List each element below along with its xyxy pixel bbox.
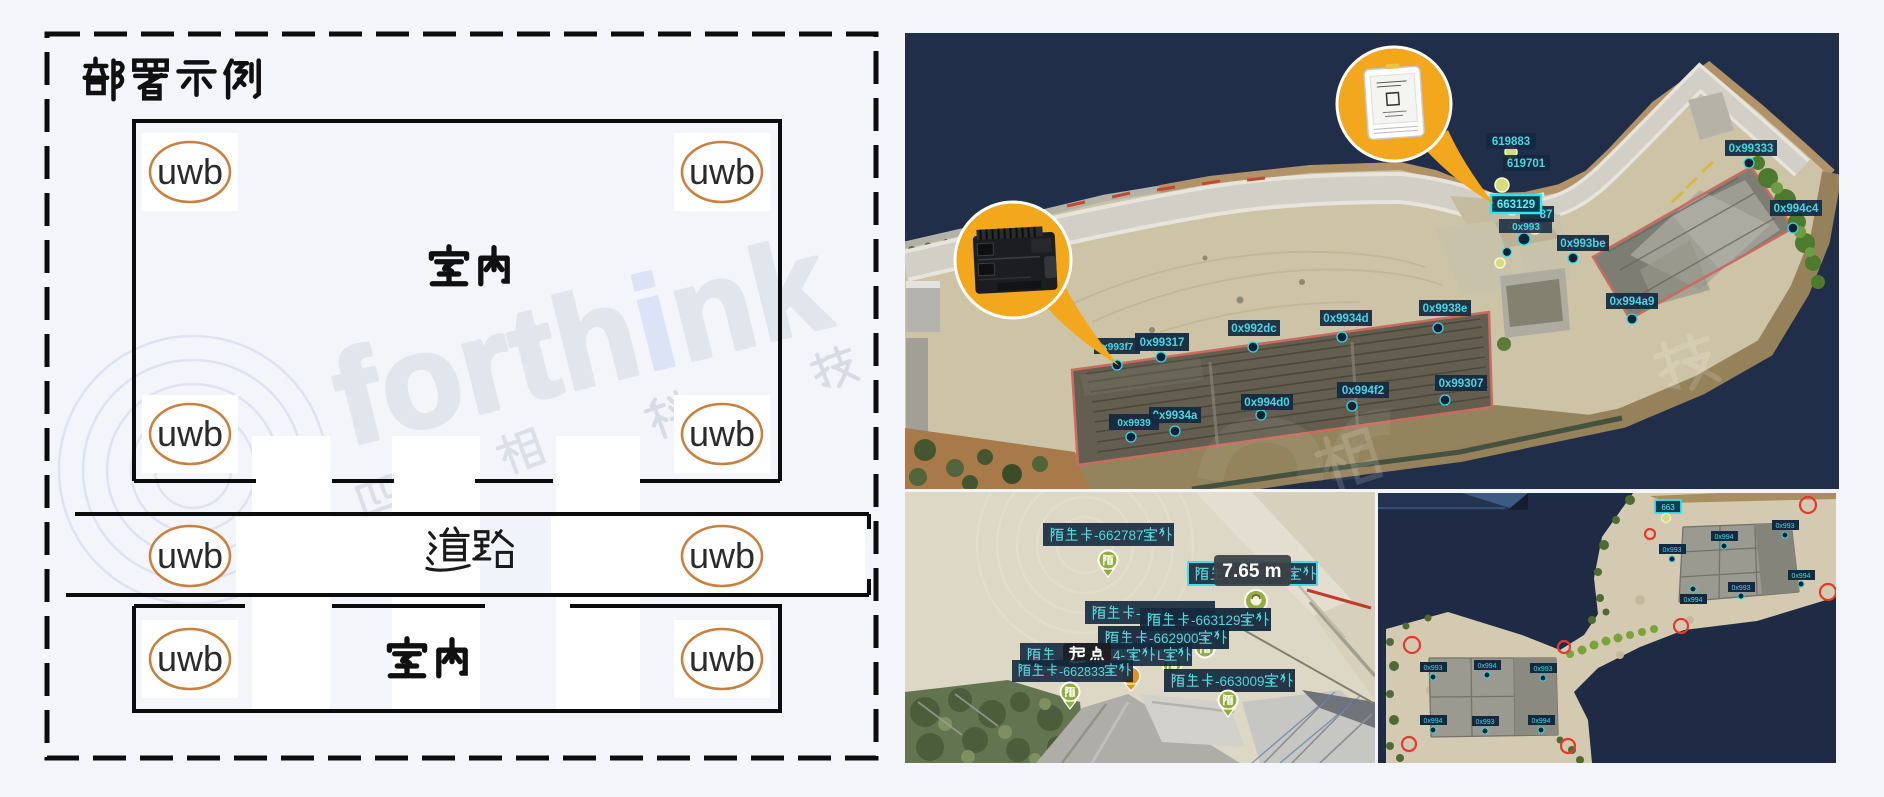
svg-text:0x9934d: 0x9934d <box>1323 313 1368 325</box>
svg-text:0x994: 0x994 <box>1531 718 1550 725</box>
svg-text:0x993: 0x993 <box>1731 585 1750 592</box>
svg-text:0x993: 0x993 <box>1475 719 1494 726</box>
svg-text:0x994: 0x994 <box>1423 718 1442 725</box>
svg-text:-662833-: -662833- <box>1059 665 1109 679</box>
svg-text:-663129-: -663129- <box>1191 613 1245 628</box>
svg-text:0x994c4: 0x994c4 <box>1774 203 1819 215</box>
svg-text:0x993: 0x993 <box>1533 666 1552 673</box>
svg-text:-663009-: -663009- <box>1215 674 1269 689</box>
svg-text:0x992dc: 0x992dc <box>1231 323 1277 335</box>
svg-text:0x9934a: 0x9934a <box>1153 410 1198 422</box>
svg-text:0x99317: 0x99317 <box>1140 337 1185 349</box>
svg-text:0x994: 0x994 <box>1683 597 1702 604</box>
svg-text:0x994: 0x994 <box>1714 534 1733 541</box>
svg-text:0x994f2: 0x994f2 <box>1342 385 1384 397</box>
svg-text:-662787-: -662787- <box>1094 528 1148 543</box>
svg-text:0x993: 0x993 <box>1423 665 1442 672</box>
svg-text:619701: 619701 <box>1507 158 1546 170</box>
svg-text:7.65 m: 7.65 m <box>1222 561 1281 582</box>
svg-text:0x993: 0x993 <box>1512 222 1540 233</box>
svg-text:663: 663 <box>1661 503 1675 512</box>
svg-text:0x993: 0x993 <box>1775 523 1794 530</box>
svg-text:663129: 663129 <box>1497 199 1535 211</box>
svg-text:0x993: 0x993 <box>1662 547 1681 554</box>
svg-text:0x994d0: 0x994d0 <box>1244 397 1289 409</box>
svg-text:L: L <box>1157 648 1165 663</box>
svg-text:0x9938e: 0x9938e <box>1423 303 1468 315</box>
svg-text:0x994: 0x994 <box>1791 573 1810 580</box>
svg-text:0x994a9: 0x994a9 <box>1610 296 1655 308</box>
svg-text:0x9939: 0x9939 <box>1117 418 1151 429</box>
svg-text:0x994: 0x994 <box>1477 663 1496 670</box>
svg-text:0x993be: 0x993be <box>1560 238 1605 250</box>
svg-text:0x99333: 0x99333 <box>1729 143 1774 155</box>
svg-text:0x99307: 0x99307 <box>1439 378 1484 390</box>
svg-text:619883: 619883 <box>1492 136 1530 148</box>
